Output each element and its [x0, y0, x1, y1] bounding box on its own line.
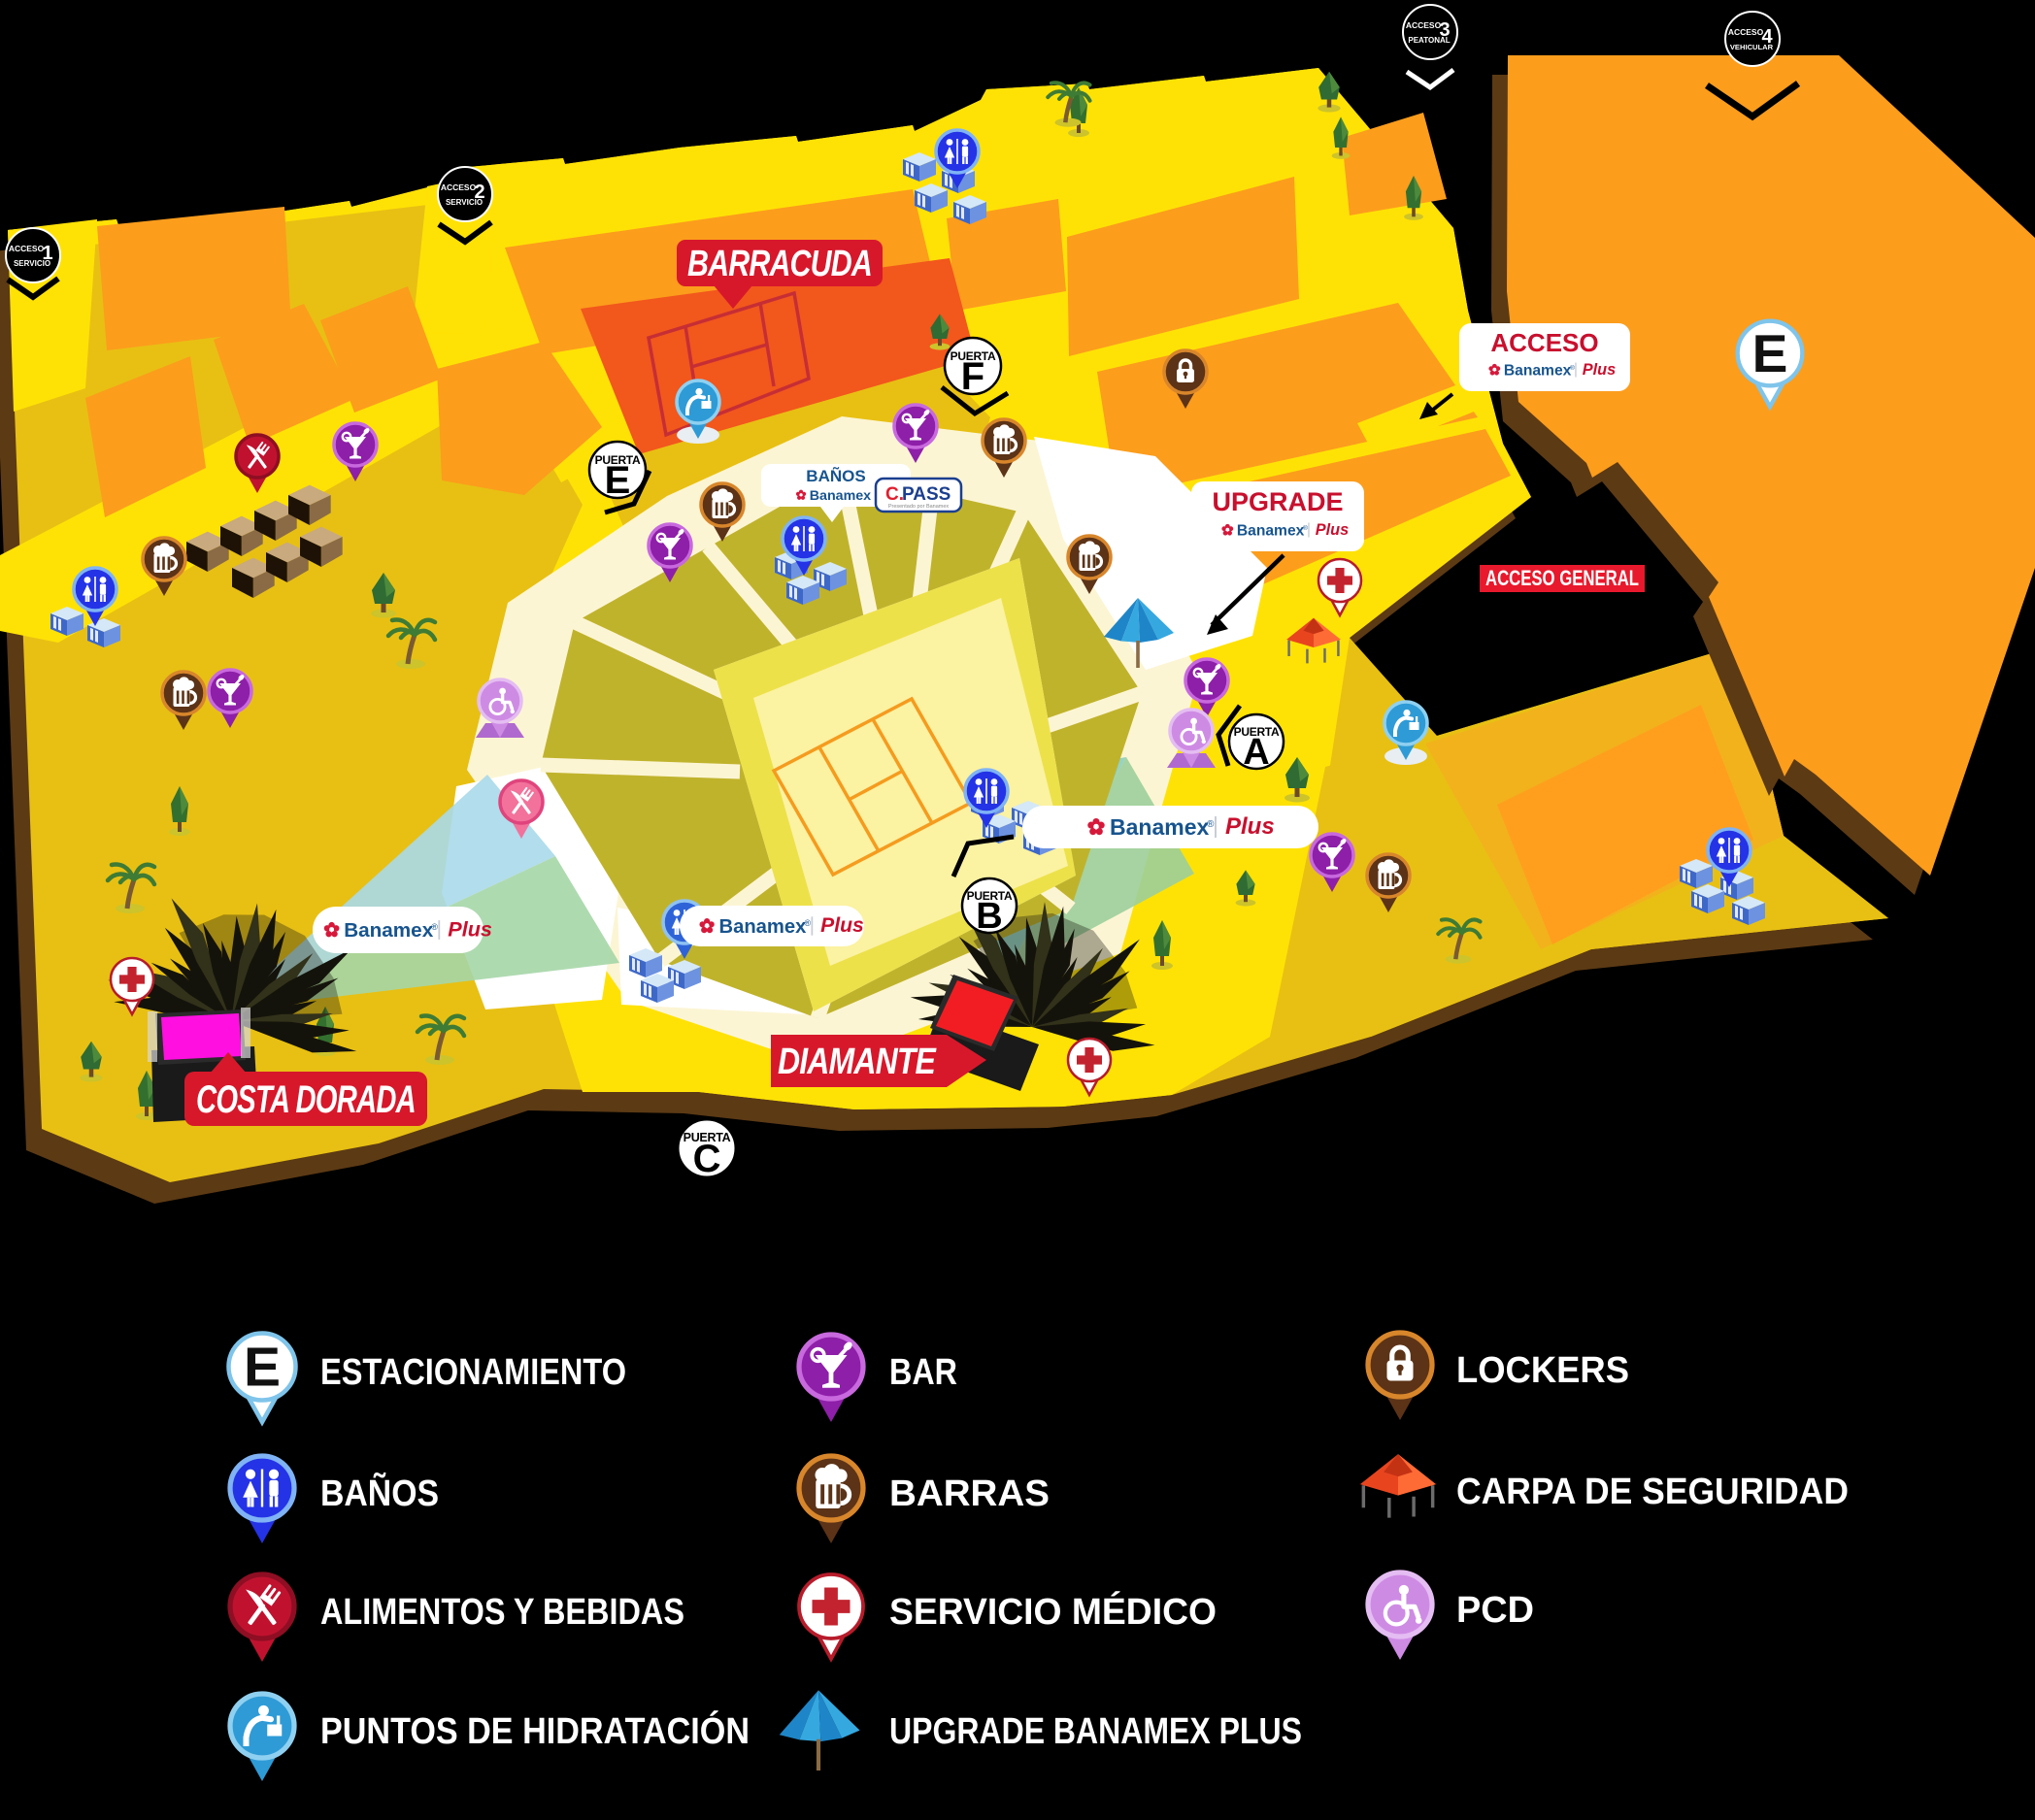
svg-text:UPGRADE BANAMEX PLUS: UPGRADE BANAMEX PLUS	[889, 1711, 1302, 1752]
svg-text:ACCESO: ACCESO	[1490, 328, 1598, 357]
svg-text:COSTA DORADA: COSTA DORADA	[196, 1078, 416, 1121]
svg-text:DIAMANTE: DIAMANTE	[778, 1042, 937, 1082]
svg-text:PASS: PASS	[902, 484, 951, 505]
svg-text:F: F	[961, 355, 984, 398]
svg-text:PEATONAL: PEATONAL	[1408, 36, 1450, 45]
svg-text:SERVICIO: SERVICIO	[446, 198, 483, 207]
svg-text:C: C	[693, 1138, 721, 1180]
svg-text:BAR: BAR	[889, 1352, 957, 1393]
svg-text:CARPA DE SEGURIDAD: CARPA DE SEGURIDAD	[1456, 1472, 1849, 1512]
svg-text:ACCESO: ACCESO	[9, 244, 45, 253]
svg-text:SERVICIO MÉDICO: SERVICIO MÉDICO	[889, 1590, 1217, 1633]
svg-text:Presentado por Banamex: Presentado por Banamex	[888, 504, 950, 510]
svg-text:BAÑOS: BAÑOS	[806, 466, 865, 485]
svg-text:Banamex: Banamex	[810, 488, 871, 504]
svg-text:BARRAS: BARRAS	[889, 1473, 1050, 1514]
svg-text:PUNTOS DE HIDRATACIÓN: PUNTOS DE HIDRATACIÓN	[320, 1709, 750, 1752]
svg-text:LOCKERS: LOCKERS	[1456, 1350, 1629, 1391]
svg-text:UPGRADE: UPGRADE	[1212, 487, 1343, 516]
svg-text:VEHICULAR: VEHICULAR	[1730, 43, 1774, 51]
svg-text:ACCESO GENERAL: ACCESO GENERAL	[1485, 566, 1639, 590]
svg-text:SERVICIO: SERVICIO	[14, 259, 50, 268]
svg-text:ACCESO: ACCESO	[441, 182, 477, 192]
svg-text:B: B	[976, 896, 1002, 937]
svg-text:PCD: PCD	[1456, 1590, 1534, 1631]
svg-text:ACCESO: ACCESO	[1406, 20, 1442, 30]
svg-text:E: E	[605, 459, 631, 502]
svg-text:ACCESO: ACCESO	[1728, 27, 1764, 37]
svg-text:ESTACIONAMIENTO: ESTACIONAMIENTO	[320, 1352, 626, 1393]
svg-text:A: A	[1243, 732, 1269, 773]
svg-text:ALIMENTOS Y BEBIDAS: ALIMENTOS Y BEBIDAS	[320, 1592, 684, 1633]
svg-text:BAÑOS: BAÑOS	[320, 1472, 439, 1514]
svg-text:BARRACUDA: BARRACUDA	[687, 244, 872, 284]
